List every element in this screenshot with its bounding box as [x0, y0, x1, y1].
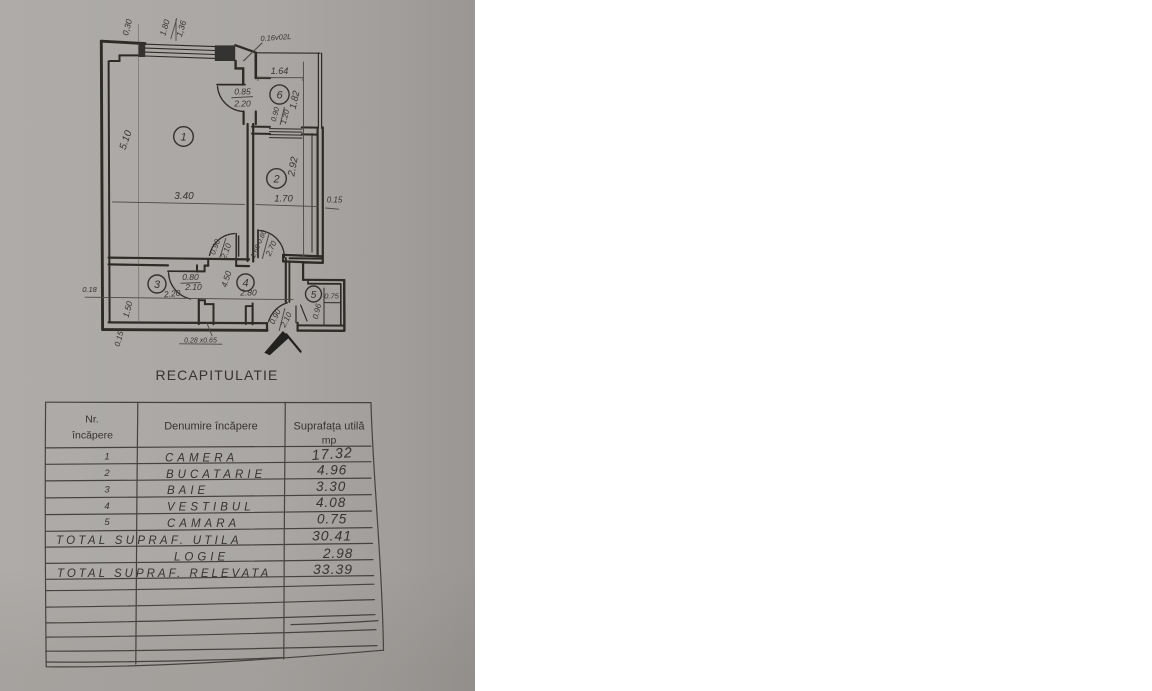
- svg-text:3.30: 3.30: [316, 479, 346, 494]
- svg-text:2.80: 2.80: [239, 288, 257, 298]
- svg-text:3.40: 3.40: [174, 191, 194, 202]
- svg-text:BUCATARIE: BUCATARIE: [166, 469, 266, 481]
- svg-text:1.64: 1.64: [271, 66, 289, 76]
- svg-text:mp: mp: [322, 435, 337, 447]
- svg-text:2.92: 2.92: [286, 156, 300, 178]
- svg-text:4.96: 4.96: [317, 463, 347, 478]
- svg-text:0,30: 0,30: [120, 18, 134, 37]
- svg-text:0.15: 0.15: [113, 330, 126, 348]
- svg-text:BAIE: BAIE: [167, 485, 209, 497]
- svg-text:CAMARA: CAMARA: [167, 518, 240, 530]
- svg-text:2: 2: [103, 468, 110, 479]
- svg-text:4.50: 4.50: [219, 269, 234, 288]
- svg-text:Nr.: Nr.: [85, 414, 98, 426]
- svg-text:1.82: 1.82: [288, 89, 303, 110]
- svg-text:17.32: 17.32: [311, 445, 353, 464]
- svg-text:6: 6: [276, 90, 283, 102]
- svg-text:4: 4: [104, 501, 109, 512]
- svg-text:0.16v02L: 0.16v02L: [260, 32, 291, 43]
- svg-text:TOTAL SUPRAF. UTILA: TOTAL SUPRAF. UTILA: [56, 535, 242, 547]
- svg-text:1: 1: [180, 132, 186, 144]
- svg-text:5.10: 5.10: [118, 129, 135, 151]
- svg-text:2.20: 2.20: [233, 99, 251, 109]
- svg-text:5: 5: [104, 517, 110, 528]
- svg-text:5: 5: [311, 290, 317, 301]
- svg-text:Suprafața utilă: Suprafața utilă: [294, 421, 366, 433]
- svg-text:0.85: 0.85: [234, 87, 251, 97]
- svg-text:LOGIE: LOGIE: [174, 552, 229, 564]
- svg-text:1.70: 1.70: [274, 194, 293, 205]
- svg-text:CAMERA: CAMERA: [165, 453, 238, 465]
- svg-text:RECAPITULATIE: RECAPITULATIE: [156, 367, 279, 383]
- svg-text:0.75: 0.75: [324, 292, 339, 301]
- svg-text:2.20: 2.20: [162, 288, 181, 300]
- svg-text:0.80: 0.80: [182, 272, 199, 282]
- svg-text:0.75: 0.75: [317, 512, 347, 527]
- svg-text:1.80: 1.80: [157, 18, 171, 37]
- svg-text:33.39: 33.39: [313, 561, 353, 577]
- svg-text:0.18: 0.18: [82, 285, 97, 294]
- svg-text:VESTIBUL: VESTIBUL: [167, 502, 255, 514]
- svg-text:30.41: 30.41: [312, 528, 352, 544]
- svg-text:1: 1: [104, 452, 109, 463]
- svg-text:0.15: 0.15: [327, 196, 343, 205]
- svg-text:2: 2: [272, 174, 279, 186]
- svg-text:Denumire încăpere: Denumire încăpere: [164, 421, 258, 433]
- svg-text:1.50: 1.50: [121, 300, 135, 319]
- svg-text:2.10: 2.10: [184, 282, 202, 292]
- svg-text:3: 3: [154, 279, 161, 291]
- svg-text:TOTAL SUPRAF. RELEVATA: TOTAL SUPRAF. RELEVATA: [57, 568, 271, 580]
- svg-text:0.28 x0.65: 0.28 x0.65: [184, 338, 217, 345]
- svg-text:0.96: 0.96: [311, 302, 324, 320]
- svg-text:2.98: 2.98: [322, 546, 353, 561]
- svg-text:încăpere: încăpere: [71, 430, 113, 442]
- svg-text:4.08: 4.08: [316, 495, 346, 510]
- svg-text:3: 3: [104, 485, 110, 496]
- svg-text:2.70: 2.70: [264, 239, 279, 258]
